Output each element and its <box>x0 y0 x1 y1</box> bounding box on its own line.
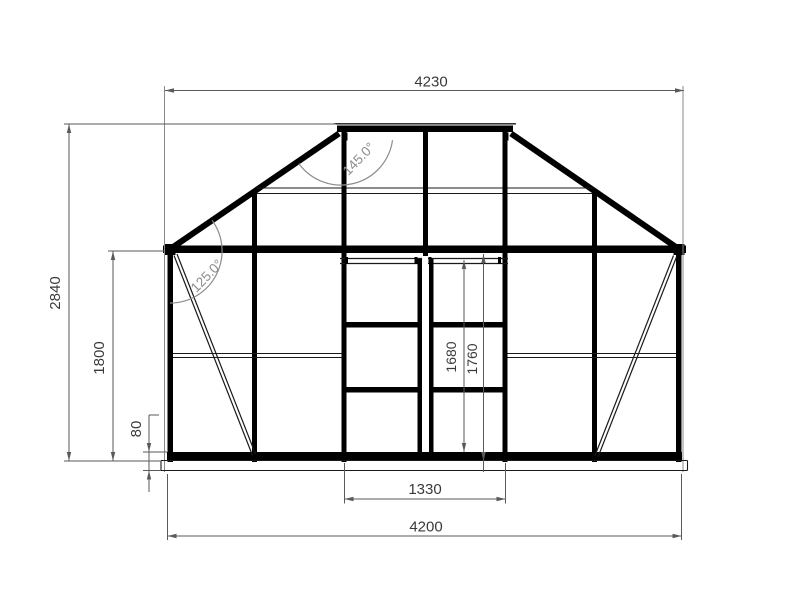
brace-left-line-a <box>174 256 253 456</box>
dim-top-width-arrow-left <box>165 88 174 92</box>
door-leaf-right-rail-upper <box>434 322 503 328</box>
base-plate <box>161 461 688 471</box>
dim-base-height-label: 80 <box>128 421 145 438</box>
dim-door-width-arrow-left <box>345 497 354 501</box>
dim-door-height-arrow-top <box>462 260 466 269</box>
inner-post-right <box>592 190 597 462</box>
door-post-left <box>342 131 347 462</box>
dimension-door-height: 1680 <box>443 260 466 452</box>
outer-post-left <box>168 252 174 462</box>
dim-door-opening-label: 1760 <box>464 343 480 374</box>
dim-top-width-label: 4230 <box>414 74 447 91</box>
brace-right <box>595 256 677 458</box>
dim-overall-height-arrow-bottom <box>67 452 71 461</box>
door-leaf-left-stile <box>418 259 423 452</box>
dim-eave-height-label: 1800 <box>91 341 108 374</box>
drawing-canvas: 145.0° 125.0° 4230 2840 1800 80 <box>0 0 800 600</box>
door-roller-tick-2 <box>415 257 418 264</box>
door-leaf-left-rail-lower <box>347 387 418 393</box>
dim-base-height-arrow-top <box>147 443 151 452</box>
brace-left <box>174 254 256 456</box>
dim-base-height-arrow-bottom <box>147 471 151 480</box>
door-leaf-right-rail-lower <box>434 387 503 393</box>
outer-post-right <box>676 252 682 462</box>
door-assembly <box>340 257 508 452</box>
door-leaf-right-stile <box>429 259 434 452</box>
dimension-door-width: 1330 <box>345 463 506 504</box>
door-roller-tick-4 <box>498 257 501 264</box>
wall-posts <box>165 86 684 472</box>
door-roller-tick-1 <box>345 257 348 264</box>
wall-rails <box>167 354 682 461</box>
dimension-base-height: 80 <box>128 415 167 492</box>
dim-eave-height-arrow-top <box>111 251 115 260</box>
dim-overall-height-arrow-top <box>67 124 71 133</box>
greenhouse-elevation-drawing: 145.0° 125.0° 4230 2840 1800 80 <box>0 0 800 600</box>
dimension-door-opening-height: 1760 <box>464 254 486 472</box>
dim-door-width-label: 1330 <box>408 481 441 498</box>
wall-bottom-bar <box>167 452 682 461</box>
dim-bottom-width-arrow-right <box>673 534 682 538</box>
dim-eave-height-arrow-bottom <box>111 452 115 461</box>
brace-right-line-a <box>595 256 674 456</box>
dim-door-height-arrow-bottom <box>462 443 466 452</box>
dimension-top-width: 4230 <box>165 74 684 93</box>
inner-post-left <box>252 190 257 462</box>
dim-overall-height-label: 2840 <box>47 276 64 309</box>
center-mullion <box>423 131 428 256</box>
dim-bottom-width-arrow-left <box>168 534 177 538</box>
door-post-right <box>503 131 508 462</box>
dim-door-height-label: 1680 <box>443 341 459 372</box>
dim-door-width-arrow-right <box>497 497 506 501</box>
door-leaf-left-rail-upper <box>347 322 418 328</box>
dim-bottom-width-label: 4200 <box>409 519 442 536</box>
angle-eave-label: 125.0° <box>188 257 226 296</box>
